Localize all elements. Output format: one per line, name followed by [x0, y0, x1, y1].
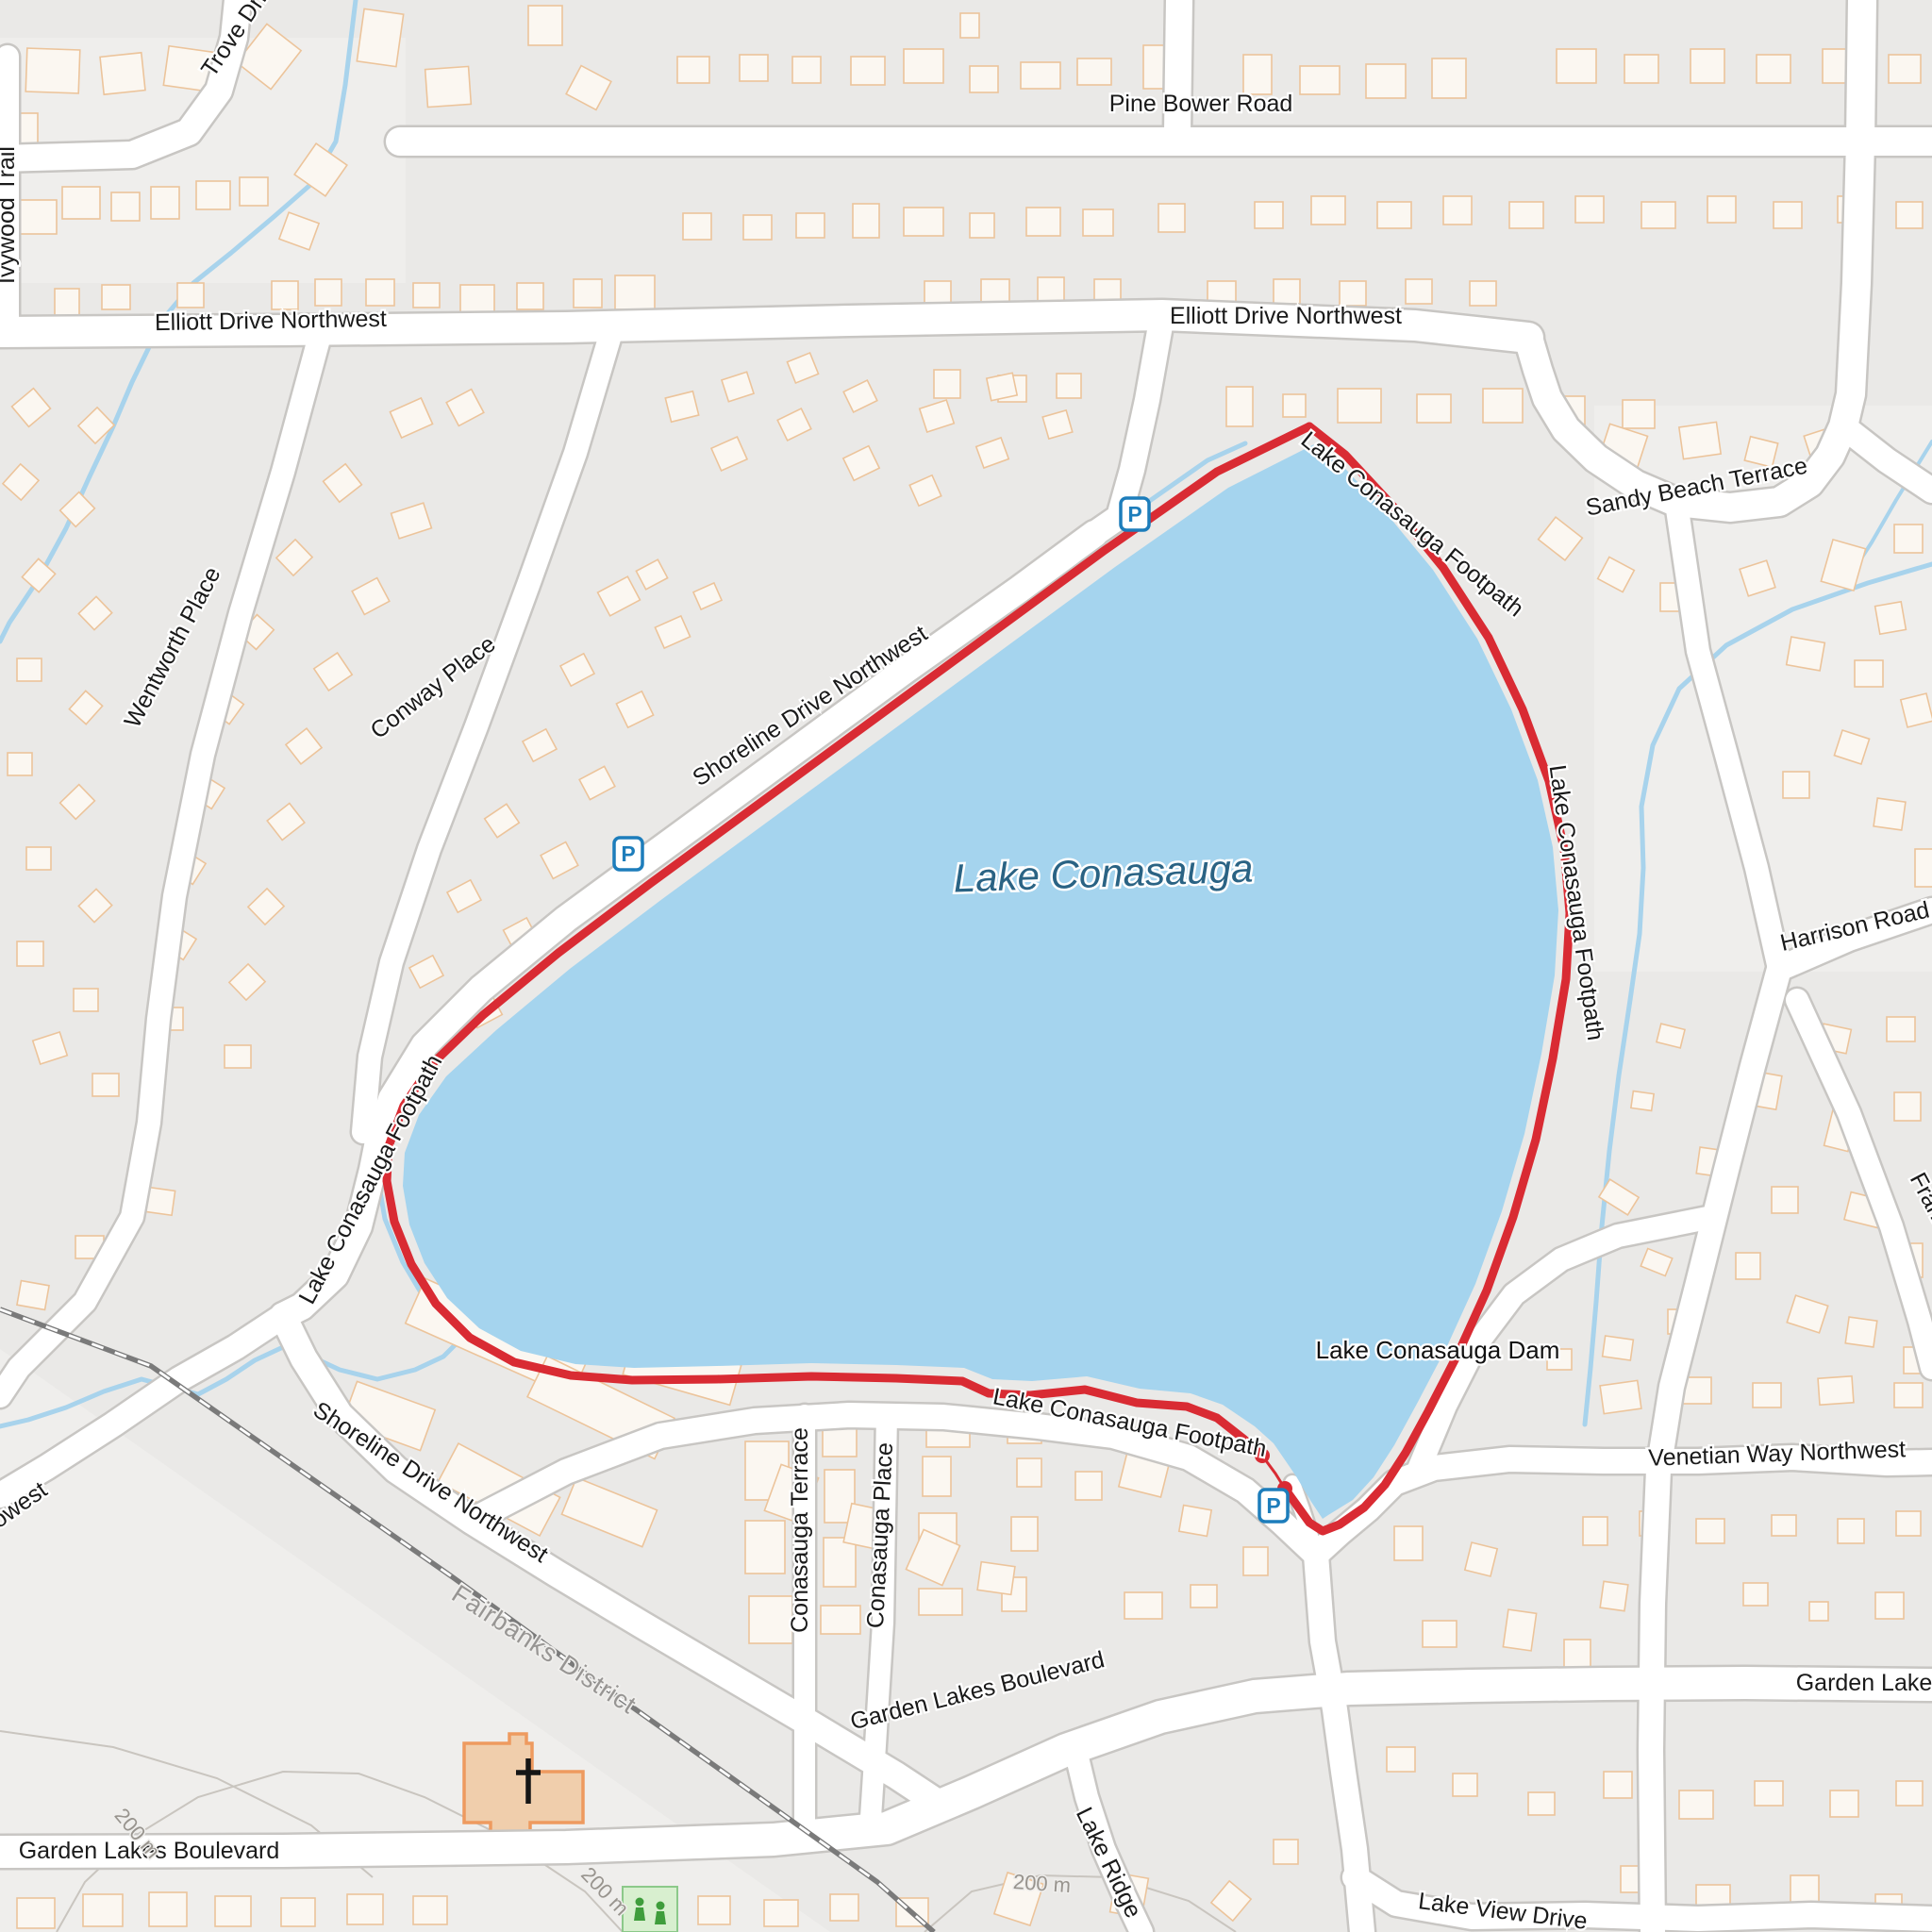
building	[821, 1606, 860, 1634]
building-outline	[1366, 64, 1406, 98]
building	[1417, 394, 1451, 423]
building-outline	[55, 289, 79, 317]
building	[1057, 374, 1081, 398]
street-label-ivywood-trail: Ivywood Trail	[0, 146, 20, 284]
building	[987, 373, 1017, 400]
parking-icon-letter: P	[621, 841, 635, 866]
building	[460, 285, 494, 313]
building	[149, 1892, 187, 1926]
building-outline	[1021, 62, 1060, 89]
building	[745, 1521, 785, 1574]
building-outline	[347, 1894, 383, 1924]
building	[1226, 387, 1253, 426]
building-outline	[677, 57, 709, 83]
building	[347, 1894, 383, 1924]
building-outline	[1790, 1875, 1819, 1904]
building-outline	[1038, 277, 1064, 302]
building-outline	[1696, 1519, 1724, 1543]
building-outline	[1915, 849, 1932, 887]
building-outline	[1417, 394, 1451, 423]
building	[830, 1894, 858, 1921]
building-outline	[1894, 1383, 1923, 1407]
building	[357, 8, 403, 66]
building	[1191, 1585, 1217, 1607]
building	[792, 57, 821, 83]
building-outline	[1896, 1781, 1923, 1806]
building	[8, 753, 32, 775]
building-outline	[1818, 1376, 1854, 1405]
building	[1604, 1772, 1632, 1798]
building-outline	[281, 1898, 315, 1926]
building	[919, 1589, 962, 1615]
building-outline	[1503, 1609, 1536, 1651]
building-outline	[745, 1521, 785, 1574]
building-outline	[1631, 1091, 1654, 1111]
building-outline	[1753, 1383, 1781, 1407]
building-outline	[17, 941, 43, 966]
building-outline	[1124, 1592, 1162, 1619]
building-outline	[1243, 55, 1272, 94]
building	[1631, 1091, 1654, 1111]
building-outline	[111, 192, 140, 221]
building-outline	[1755, 1781, 1783, 1806]
building-outline	[1604, 1772, 1632, 1798]
building	[981, 279, 1009, 304]
building	[677, 57, 709, 83]
building	[1757, 55, 1790, 83]
building	[151, 187, 179, 219]
building-outline	[1787, 637, 1825, 671]
building	[1026, 208, 1060, 236]
building-outline	[1774, 202, 1802, 228]
building-outline	[1557, 49, 1596, 83]
building-outline	[1690, 49, 1724, 83]
building-outline	[904, 208, 943, 236]
building	[1889, 55, 1921, 83]
building	[1641, 202, 1675, 228]
building-outline	[987, 373, 1017, 400]
parking-icon: P	[614, 838, 642, 870]
building	[934, 370, 960, 398]
building-outline	[1624, 55, 1658, 83]
building-outline	[196, 181, 230, 209]
building-outline	[764, 1900, 798, 1926]
building	[1838, 1519, 1864, 1543]
building-outline	[1575, 196, 1604, 223]
building	[1179, 1506, 1211, 1537]
building-outline	[17, 200, 57, 234]
building-outline	[792, 57, 821, 83]
building-outline	[960, 13, 979, 38]
building-outline	[62, 187, 100, 219]
building	[1896, 202, 1923, 228]
building-outline	[1432, 58, 1466, 98]
building-outline	[919, 1589, 962, 1615]
building	[1453, 1774, 1477, 1796]
building	[1896, 1781, 1923, 1806]
building-outline	[1583, 1517, 1607, 1545]
building-outline	[1274, 1840, 1298, 1864]
building-outline	[1470, 281, 1496, 306]
map-viewport[interactable]: PPPPine Bower RoadElliott Drive Northwes…	[0, 0, 1932, 1932]
building	[111, 192, 140, 221]
building	[960, 13, 979, 38]
building-outline	[1453, 1774, 1477, 1796]
building-outline	[970, 213, 994, 238]
building	[1021, 62, 1060, 89]
building	[1300, 66, 1340, 94]
building	[1377, 202, 1411, 228]
building	[1575, 196, 1604, 223]
building	[26, 847, 51, 870]
building	[272, 281, 298, 309]
building	[1255, 202, 1283, 228]
building	[425, 66, 472, 107]
building-outline	[698, 1896, 730, 1924]
building	[970, 66, 998, 92]
building-outline	[1600, 1380, 1641, 1413]
playground-person-icon	[634, 1898, 645, 1922]
building-outline	[1394, 1526, 1423, 1560]
building	[970, 213, 994, 238]
building	[83, 1894, 123, 1926]
building	[528, 6, 562, 45]
building	[92, 1074, 119, 1096]
building	[62, 187, 100, 219]
building-outline	[1830, 1790, 1858, 1817]
building-outline	[981, 279, 1009, 304]
building	[100, 53, 145, 94]
building-outline	[934, 370, 960, 398]
building	[683, 213, 711, 240]
building	[1787, 637, 1825, 671]
building-outline	[17, 658, 42, 681]
building-outline	[923, 1457, 951, 1496]
map-canvas[interactable]: PPPPine Bower RoadElliott Drive Northwes…	[0, 0, 1932, 1932]
person-head	[636, 1898, 644, 1907]
building	[1875, 1592, 1904, 1619]
building-outline	[1838, 1519, 1864, 1543]
building	[1623, 400, 1655, 428]
building	[1509, 202, 1543, 228]
building-outline	[460, 285, 494, 313]
building	[1423, 1621, 1457, 1647]
building	[1772, 1187, 1798, 1213]
building	[17, 941, 43, 966]
street-label-elliott-drive-northwest-east: Elliott Drive Northwest	[1170, 303, 1402, 329]
building-outline	[1772, 1515, 1796, 1536]
building-outline	[413, 1896, 447, 1924]
building	[1158, 204, 1185, 232]
building	[1465, 1542, 1497, 1576]
building	[25, 48, 80, 93]
building	[1528, 1792, 1555, 1815]
poi-label-lake-conasauga-dam: Lake Conasauga Dam	[1316, 1336, 1560, 1364]
building-outline	[1443, 196, 1472, 225]
building-outline	[1387, 1747, 1415, 1772]
building	[1387, 1747, 1415, 1772]
building-outline	[92, 1074, 119, 1096]
building-outline	[1191, 1585, 1217, 1607]
building	[1366, 64, 1406, 98]
building-outline	[824, 1538, 856, 1587]
building	[574, 279, 602, 308]
building-outline	[215, 1896, 251, 1926]
building	[1753, 1383, 1781, 1407]
building-outline	[1896, 1511, 1921, 1536]
building	[853, 204, 879, 238]
building	[1311, 196, 1345, 225]
building-outline	[1026, 208, 1060, 236]
building	[1755, 1781, 1783, 1806]
building	[1557, 49, 1596, 83]
building-outline	[574, 279, 602, 308]
playground	[623, 1887, 677, 1932]
building	[177, 283, 204, 308]
street-label-elliott-drive-northwest-west: Elliott Drive Northwest	[155, 306, 387, 336]
building-outline	[1887, 1017, 1915, 1041]
building	[615, 275, 655, 309]
building-outline	[851, 57, 885, 85]
building	[1896, 1511, 1921, 1536]
building-outline	[821, 1606, 860, 1634]
building	[366, 279, 394, 306]
building	[1679, 1790, 1713, 1819]
building-outline	[970, 66, 998, 92]
building-outline	[853, 204, 879, 238]
building	[1696, 1519, 1724, 1543]
building	[1406, 279, 1432, 304]
parking-icon-letter: P	[1127, 502, 1141, 526]
building	[1432, 58, 1466, 98]
building	[1736, 1253, 1760, 1279]
building	[1790, 1875, 1819, 1904]
playground-person-icon	[655, 1902, 666, 1925]
building	[1011, 1517, 1038, 1551]
building-outline	[1783, 772, 1809, 798]
building	[1394, 1526, 1423, 1560]
building-outline	[1465, 1542, 1497, 1576]
building-outline	[528, 6, 562, 45]
building-outline	[615, 275, 655, 309]
building	[1874, 798, 1906, 830]
building-outline	[1875, 602, 1907, 634]
parking-icon: P	[1121, 498, 1149, 530]
building	[824, 1538, 856, 1587]
building-outline	[1896, 202, 1923, 228]
person-head	[657, 1902, 665, 1910]
building-outline	[1743, 1583, 1768, 1606]
building	[1894, 1092, 1921, 1121]
building-outline	[1311, 196, 1345, 225]
building-outline	[413, 283, 440, 308]
building-outline	[1528, 1792, 1555, 1815]
building-outline	[1017, 1458, 1041, 1487]
building-outline	[1423, 1621, 1457, 1647]
building-outline	[796, 213, 824, 238]
building	[1679, 422, 1721, 458]
building-outline	[1641, 202, 1675, 228]
building	[1690, 49, 1724, 83]
building	[1274, 279, 1300, 304]
building-outline	[1509, 202, 1543, 228]
building-outline	[1483, 389, 1523, 423]
building-outline	[1077, 58, 1111, 85]
building-outline	[1158, 204, 1185, 232]
building-outline	[83, 1894, 123, 1926]
parking-icon-letter: P	[1266, 1493, 1280, 1518]
building	[743, 215, 772, 240]
building-outline	[904, 49, 943, 83]
building-outline	[1736, 1253, 1760, 1279]
building	[923, 1457, 951, 1496]
building-outline	[425, 66, 472, 107]
building-outline	[102, 285, 130, 309]
building-outline	[17, 1898, 55, 1928]
building	[315, 279, 341, 306]
building	[1887, 1017, 1915, 1041]
building-outline	[1011, 1517, 1038, 1551]
building	[1243, 1547, 1268, 1575]
building	[1894, 1383, 1923, 1407]
building	[740, 55, 768, 81]
building	[698, 1896, 730, 1924]
building-outline	[1623, 400, 1655, 428]
building	[1809, 1602, 1828, 1621]
building	[1503, 1609, 1536, 1651]
building	[1600, 1581, 1628, 1610]
building-outline	[240, 177, 268, 206]
building	[796, 213, 824, 238]
building	[225, 1045, 251, 1068]
building-outline	[1679, 1790, 1713, 1819]
building-outline	[366, 279, 394, 306]
building	[1783, 772, 1809, 798]
building-outline	[1874, 798, 1906, 830]
building	[977, 1562, 1015, 1595]
building-outline	[1057, 374, 1081, 398]
building-outline	[357, 8, 403, 66]
building-outline	[1283, 394, 1306, 417]
playground-area	[623, 1887, 677, 1932]
building	[517, 283, 543, 309]
building	[1772, 1515, 1796, 1536]
building	[1483, 389, 1523, 423]
building-outline	[1226, 387, 1253, 426]
building-outline	[1338, 389, 1381, 423]
building	[102, 285, 130, 309]
building-outline	[743, 215, 772, 240]
building	[281, 1898, 315, 1926]
building	[1707, 196, 1736, 223]
building-outline	[1889, 55, 1921, 83]
building	[904, 49, 943, 83]
building	[1083, 209, 1113, 236]
building	[764, 1900, 798, 1926]
building-outline	[1243, 1547, 1268, 1575]
building-outline	[1075, 1472, 1102, 1500]
building	[17, 1281, 49, 1310]
building	[1624, 55, 1658, 83]
street-label-conasauga-terrace: Conasauga Terrace	[787, 1427, 813, 1633]
building-outline	[1855, 660, 1883, 687]
contour-label-200m-c: 200 m	[1012, 1870, 1072, 1897]
building-outline	[1875, 1592, 1904, 1619]
building	[1564, 1640, 1591, 1668]
building-outline	[315, 279, 341, 306]
parking-icon: P	[1259, 1490, 1288, 1522]
building-outline	[272, 281, 298, 309]
building-outline	[1809, 1602, 1828, 1621]
building	[1603, 1336, 1634, 1360]
building	[55, 289, 79, 317]
building	[1583, 1517, 1607, 1545]
building-outline	[1179, 1506, 1211, 1537]
building-outline	[517, 283, 543, 309]
building-outline	[25, 48, 80, 93]
building	[1283, 394, 1306, 417]
building-outline	[683, 213, 711, 240]
building	[1017, 1458, 1041, 1487]
building-outline	[8, 753, 32, 775]
person-body	[655, 1911, 666, 1924]
building-outline	[1772, 1187, 1798, 1213]
building-outline	[1707, 196, 1736, 223]
building	[1124, 1592, 1162, 1619]
building-outline	[1679, 422, 1721, 458]
building	[1443, 196, 1472, 225]
building-outline	[1757, 55, 1790, 83]
building-outline	[1603, 1336, 1634, 1360]
building	[851, 57, 885, 85]
building-outline	[26, 847, 51, 870]
building-outline	[740, 55, 768, 81]
street-label-pine-bower-road: Pine Bower Road	[1109, 91, 1293, 117]
building	[1274, 1840, 1298, 1864]
building-outline	[225, 1045, 251, 1068]
building	[1915, 849, 1932, 887]
building	[1845, 1317, 1877, 1347]
building	[1470, 281, 1496, 306]
building-outline	[151, 187, 179, 219]
building-outline	[1083, 209, 1113, 236]
building-outline	[177, 283, 204, 308]
building	[1077, 58, 1111, 85]
building	[74, 989, 98, 1011]
building	[1743, 1583, 1768, 1606]
building-outline	[1894, 1092, 1921, 1121]
building-outline	[977, 1562, 1015, 1595]
building	[1855, 660, 1883, 687]
building	[1875, 602, 1907, 634]
building-outline	[1564, 1640, 1591, 1668]
building-outline	[1274, 279, 1300, 304]
building-outline	[1300, 66, 1340, 94]
building-outline	[17, 1281, 49, 1310]
building	[196, 181, 230, 209]
building	[17, 200, 57, 234]
building-outline	[1845, 1317, 1877, 1347]
building-outline	[1894, 525, 1923, 553]
building-outline	[1377, 202, 1411, 228]
building-outline	[1406, 279, 1432, 304]
building	[17, 1898, 55, 1928]
building	[1774, 202, 1802, 228]
building-outline	[830, 1894, 858, 1921]
building-outline	[149, 1892, 187, 1926]
building	[1075, 1472, 1102, 1500]
building-outline	[1255, 202, 1283, 228]
